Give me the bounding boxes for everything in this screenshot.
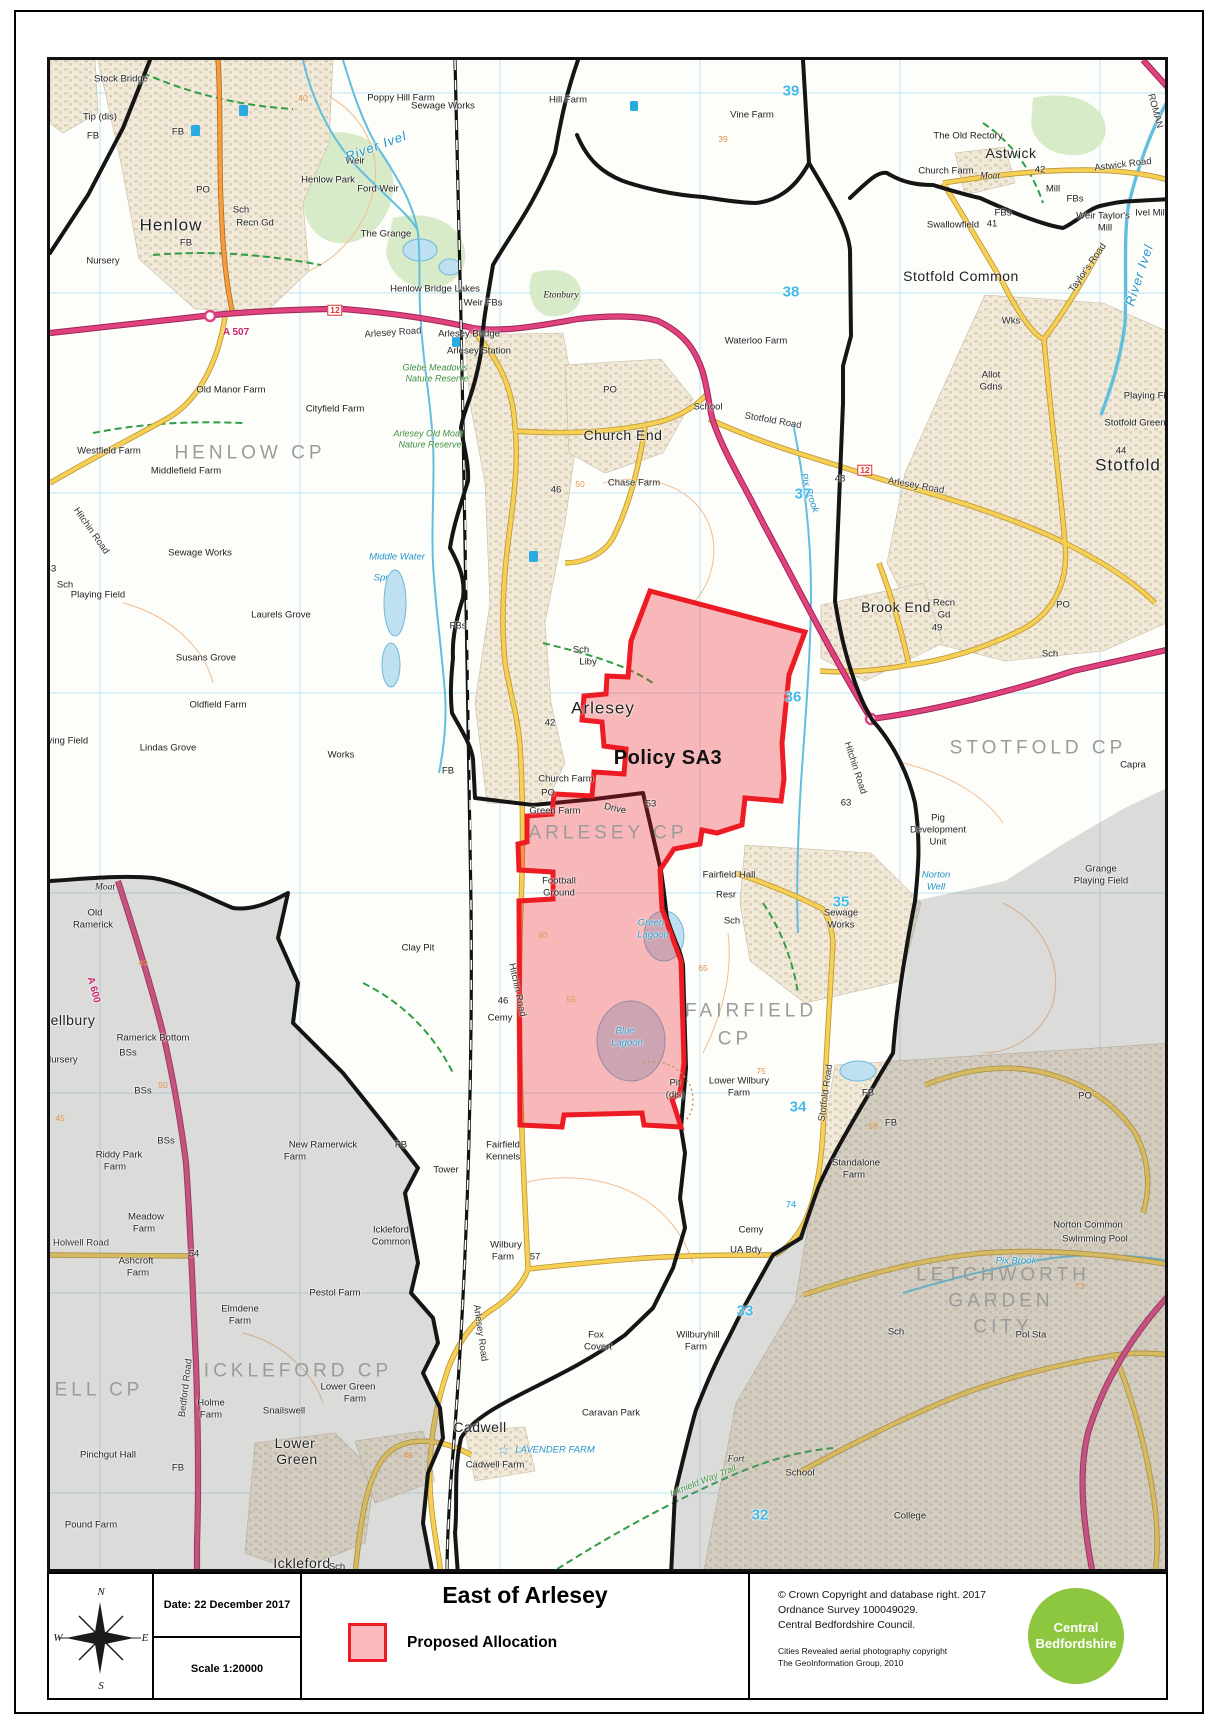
map-label: PO bbox=[1078, 1091, 1092, 1101]
map-label: Nursery bbox=[86, 256, 119, 266]
map-label: Playing Field bbox=[47, 736, 88, 746]
map-label: School bbox=[785, 1468, 814, 1478]
map-label: 42 bbox=[1035, 165, 1046, 175]
map-label: ellbury bbox=[51, 1013, 96, 1027]
copyright-text: © Crown Copyright and database right. 20… bbox=[778, 1588, 986, 1633]
map-label: Unit bbox=[930, 837, 947, 847]
map-label: 39 bbox=[783, 84, 800, 99]
date-scale-box: Date: 22 December 2017 Scale 1:20000 bbox=[152, 1572, 302, 1700]
map-label: 39 bbox=[718, 135, 727, 144]
map-label: Fort bbox=[728, 1455, 745, 1465]
map-label: 46 bbox=[498, 996, 509, 1006]
map-label: Football bbox=[542, 876, 576, 886]
map-label: Glebe Meadows bbox=[402, 364, 467, 373]
map-label: Moat bbox=[980, 172, 1000, 182]
map-label: Policy SA3 bbox=[614, 748, 722, 768]
map-label: Capra bbox=[1120, 760, 1146, 770]
map-label: Laurels Grove bbox=[251, 610, 311, 620]
map-label: 42 bbox=[545, 718, 556, 728]
map-label: Henlow Bridge Lakes bbox=[390, 284, 480, 294]
map-label: FBs bbox=[450, 621, 467, 631]
map-label: Blue bbox=[615, 1026, 634, 1036]
map-label: 50 bbox=[575, 480, 584, 489]
map-label: Well bbox=[927, 882, 945, 892]
map-label: Nature Reserve bbox=[398, 441, 461, 450]
copyright-line: Central Bedfordshire Council. bbox=[778, 1618, 986, 1633]
map-label: Cadwell bbox=[453, 1420, 506, 1434]
map-label: 49 bbox=[138, 959, 147, 968]
map-label: FB bbox=[172, 1463, 184, 1473]
map-label: Farm bbox=[133, 1224, 155, 1234]
map-label: Church Farm bbox=[538, 774, 593, 784]
map-label: 60 bbox=[538, 931, 547, 940]
map-label: ROMAN bbox=[1146, 93, 1164, 130]
map-date: Date: 22 December 2017 bbox=[154, 1574, 300, 1636]
map-label: BSs bbox=[119, 1048, 136, 1058]
map-label: FB bbox=[87, 131, 99, 141]
map-label: Cityfield Farm bbox=[306, 404, 365, 414]
map-label: Works bbox=[328, 750, 355, 760]
map-label: FB bbox=[172, 127, 184, 137]
map-label: Pig bbox=[931, 813, 945, 823]
copyright-line: Ordnance Survey 100049029. bbox=[778, 1603, 986, 1618]
map-label: 41 bbox=[987, 219, 998, 229]
map-label: Lower Green bbox=[321, 1382, 376, 1392]
map-label: Green Farm bbox=[529, 806, 580, 816]
map-label: Gd bbox=[938, 610, 951, 620]
map-label: Sewage Works bbox=[168, 548, 232, 558]
map-label: Farm bbox=[728, 1088, 750, 1098]
map-label: Resr bbox=[716, 890, 736, 900]
map-label: Stock Bridge bbox=[94, 74, 148, 84]
map-label: Lindas Grove bbox=[140, 743, 197, 753]
map-label: Meadow bbox=[128, 1212, 164, 1222]
map-label: Arlesey Bridge bbox=[438, 329, 500, 339]
map-label: Stotfold Road bbox=[817, 1064, 834, 1122]
map-label: FB bbox=[862, 1088, 874, 1098]
map-label: ICKLEFORD CP bbox=[204, 1362, 392, 1381]
map-label: Sch bbox=[724, 916, 740, 926]
map-label: Norton Common bbox=[1053, 1220, 1123, 1230]
central-bedfordshire-logo: Central Bedfordshire bbox=[1028, 1588, 1124, 1684]
map-label: River Ivel bbox=[344, 129, 409, 163]
map-label: Farm bbox=[127, 1268, 149, 1278]
map-label: 45 bbox=[55, 1114, 64, 1123]
map-label: New Ramerwick bbox=[289, 1140, 358, 1150]
map-label: Liby bbox=[579, 657, 596, 667]
compass-west-label: W bbox=[53, 1632, 62, 1644]
map-label: Recn bbox=[933, 598, 955, 608]
map-label: 12 bbox=[327, 305, 342, 316]
map-label: Green bbox=[276, 1452, 317, 1466]
aerial-line: Cities Revealed aerial photography copyr… bbox=[778, 1646, 947, 1658]
map-label: FBs bbox=[995, 208, 1012, 218]
map-label: Fox bbox=[588, 1330, 604, 1340]
map-label: Fairfield bbox=[486, 1140, 520, 1150]
copyright-line: © Crown Copyright and database right. 20… bbox=[778, 1588, 986, 1603]
map-label: Common bbox=[372, 1237, 411, 1247]
map-label: Sch bbox=[329, 1562, 345, 1572]
map-label: Swallowfield bbox=[927, 220, 979, 230]
map-label: 75 bbox=[756, 1067, 765, 1076]
map-label: Waterloo Farm bbox=[725, 336, 787, 346]
map-label: Sch bbox=[1042, 649, 1058, 659]
map-labels: Stock BridgeTip (dis)FBPoppy Hill FarmSe… bbox=[47, 57, 1168, 1572]
map-label: 12 bbox=[857, 465, 872, 476]
map-label: Ashcroft bbox=[119, 1256, 154, 1266]
map-label: Chase Farm bbox=[608, 478, 660, 488]
map-label: FB bbox=[885, 1118, 897, 1128]
map-label: A 600 bbox=[85, 976, 101, 1004]
map-label: FBs bbox=[1067, 194, 1084, 204]
map-label: Farm bbox=[200, 1410, 222, 1420]
map-label: FAIRFIELD bbox=[685, 1002, 817, 1021]
map-label: 57 bbox=[530, 1252, 541, 1262]
aerial-line: The GeoInformation Group, 2010 bbox=[778, 1658, 947, 1670]
compass-east-label: E bbox=[142, 1632, 149, 1644]
map-label: School bbox=[693, 402, 722, 412]
map-label: ARLESEY CP bbox=[529, 824, 688, 843]
proposed-allocation-swatch bbox=[348, 1623, 387, 1662]
map-label: BSs bbox=[157, 1136, 174, 1146]
map-label: Ramerick bbox=[73, 920, 113, 930]
map-label: River Ivel bbox=[1123, 242, 1155, 307]
map-label: GARDEN bbox=[948, 1292, 1053, 1311]
map-label: 48 bbox=[835, 474, 846, 484]
map-label: Swimming Pool bbox=[1062, 1234, 1127, 1244]
map-label: LETCHWORTH bbox=[916, 1266, 1090, 1285]
map-label: FB bbox=[395, 1140, 407, 1150]
map-label: Hitchin Road bbox=[507, 962, 528, 1017]
map-label: Farm bbox=[685, 1342, 707, 1352]
map-label: PO bbox=[196, 185, 210, 195]
map-label: Stotfold bbox=[1095, 457, 1161, 474]
map-label: Farm bbox=[344, 1394, 366, 1404]
map-label: Ground bbox=[543, 888, 575, 898]
map-label: Farm bbox=[104, 1162, 126, 1172]
map-label: 48 bbox=[403, 1451, 412, 1460]
map-label: Ickleford bbox=[273, 1556, 330, 1570]
map-label: Hill Farm bbox=[549, 95, 587, 105]
map-label: Holwell Road bbox=[53, 1238, 109, 1248]
map-label: Wks bbox=[1002, 316, 1020, 326]
map-label: 36 bbox=[785, 690, 802, 705]
map-label: Hitchin Road bbox=[72, 506, 111, 556]
map-label: Green bbox=[638, 918, 664, 928]
map-label: Snailswell bbox=[263, 1406, 305, 1416]
map-label: 49 bbox=[932, 623, 943, 633]
map-label: Susans Grove bbox=[176, 653, 236, 663]
map-label: Lagoon bbox=[637, 930, 669, 940]
map-label: Arlesey Road bbox=[471, 1304, 488, 1362]
map-label: Vine Farm bbox=[730, 110, 774, 120]
map-label: 35 bbox=[833, 895, 850, 910]
map-label: Arlesey Station bbox=[447, 346, 511, 356]
map-label: Pestol Farm bbox=[309, 1288, 360, 1298]
map-label: Covert bbox=[584, 1342, 612, 1352]
map-label: Allot bbox=[982, 370, 1000, 380]
map-label: Icknield Way Trail bbox=[669, 1464, 737, 1499]
logo-line: Central bbox=[1054, 1620, 1099, 1636]
map-label: Sch bbox=[57, 580, 73, 590]
map-label: College bbox=[894, 1511, 926, 1521]
map-label: Taylor's Road bbox=[1068, 242, 1109, 294]
map-canvas: Stock BridgeTip (dis)FBPoppy Hill FarmSe… bbox=[47, 57, 1168, 1572]
map-label: 44 bbox=[1116, 446, 1127, 456]
map-label: Cadwell Farm bbox=[466, 1460, 525, 1470]
map-label: The Grange bbox=[361, 229, 412, 239]
map-label: Westfield Farm bbox=[77, 446, 141, 456]
map-label: Moat bbox=[95, 883, 115, 893]
map-label: 33 bbox=[737, 1304, 754, 1319]
map-label: Works bbox=[828, 920, 855, 930]
page: Stock BridgeTip (dis)FBPoppy Hill FarmSe… bbox=[0, 0, 1222, 1728]
map-label: Lower bbox=[275, 1436, 316, 1450]
logo-line: Bedfordshire bbox=[1036, 1636, 1117, 1652]
map-label: Nursery bbox=[47, 1055, 78, 1065]
map-label: 40 bbox=[298, 94, 307, 103]
map-label: Lower Wilbury bbox=[709, 1076, 769, 1086]
map-label: Tower bbox=[433, 1165, 458, 1175]
map-label: Tip (dis) bbox=[83, 112, 117, 122]
map-label: Holme bbox=[197, 1398, 224, 1408]
map-label: A 507 bbox=[223, 328, 249, 338]
map-label: Farm bbox=[229, 1316, 251, 1326]
map-label: Cemy bbox=[488, 1013, 513, 1023]
legend-row: Proposed Allocation bbox=[348, 1623, 748, 1662]
map-label: Brook End bbox=[861, 600, 931, 614]
map-label: Spr bbox=[374, 573, 389, 583]
map-label: Hitchin Road bbox=[842, 741, 868, 796]
map-label: Sch bbox=[233, 205, 249, 215]
map-label: Development bbox=[910, 825, 966, 835]
map-label: (dis) bbox=[666, 1090, 684, 1100]
map-label: Playing Field bbox=[1124, 391, 1168, 401]
map-label: 58 bbox=[868, 1122, 877, 1131]
map-label: Pinchgut Hall bbox=[80, 1450, 136, 1460]
map-label: 55 bbox=[566, 995, 575, 1004]
map-label: Norton bbox=[922, 870, 951, 880]
map-label: 50 bbox=[158, 1081, 167, 1090]
map-label: Farm bbox=[492, 1252, 514, 1262]
map-label: 53 bbox=[646, 799, 657, 809]
map-label: Stotfold Road bbox=[744, 411, 802, 430]
map-label: Wilburyhill bbox=[676, 1330, 719, 1340]
map-label: 32 bbox=[752, 1508, 769, 1523]
map-label: 38 bbox=[783, 285, 800, 300]
map-label: The Old Rectory bbox=[933, 131, 1002, 141]
map-label: Cemy bbox=[739, 1225, 764, 1235]
map-label: Pit bbox=[669, 1078, 680, 1088]
map-label: Henlow Park bbox=[301, 175, 355, 185]
map-label: Oldfield Farm bbox=[189, 700, 246, 710]
map-label: Wilbury bbox=[490, 1240, 522, 1250]
map-label: Church End bbox=[584, 428, 663, 442]
map-label: CP bbox=[718, 1030, 752, 1049]
map-label: Arlesey Road bbox=[887, 476, 945, 495]
map-label: 54 bbox=[189, 1249, 200, 1259]
map-frame: Stock BridgeTip (dis)FBPoppy Hill FarmSe… bbox=[47, 57, 1168, 1572]
map-label: Astwick Road bbox=[1094, 157, 1152, 173]
map-label: Pol Sta bbox=[1016, 1330, 1047, 1340]
map-label: FB bbox=[180, 238, 192, 248]
map-label: Ivel Mill bbox=[1135, 208, 1167, 218]
map-label: HENLOW CP bbox=[174, 444, 325, 463]
map-label: Recn Gd bbox=[236, 218, 274, 228]
map-label: 63 bbox=[841, 798, 852, 808]
map-label: Etonbury bbox=[543, 291, 578, 301]
map-label: FB bbox=[442, 766, 454, 776]
compass-south-label: S bbox=[98, 1680, 104, 1692]
proposed-allocation-label: Proposed Allocation bbox=[407, 1634, 557, 1652]
map-label: Stotfold Green bbox=[1104, 418, 1165, 428]
compass-north-label: N bbox=[97, 1586, 104, 1598]
map-label: Ford Weir bbox=[357, 184, 399, 194]
map-label: Mill bbox=[1098, 223, 1112, 233]
map-label: Astwick bbox=[986, 146, 1037, 160]
map-label: Gdns bbox=[980, 382, 1003, 392]
map-label: Weir FBs bbox=[464, 298, 503, 308]
map-label: Church Farm bbox=[918, 166, 973, 176]
map-label: Grange bbox=[1085, 864, 1117, 874]
map-label: Weir Taylor's bbox=[1076, 211, 1130, 221]
map-label: Mill bbox=[1046, 184, 1060, 194]
map-label: PO bbox=[1056, 600, 1070, 610]
map-label: 34 bbox=[790, 1100, 807, 1115]
map-label: Middle Water bbox=[369, 552, 425, 562]
map-label: ☆ bbox=[497, 1444, 510, 1457]
map-label: Bedford Road bbox=[178, 1358, 195, 1417]
map-title: East of Arlesey bbox=[302, 1582, 748, 1609]
map-label: 37 bbox=[795, 487, 812, 502]
map-label: PO bbox=[603, 385, 617, 395]
map-label: STOTFOLD CP bbox=[950, 739, 1127, 758]
map-label: 46 bbox=[551, 485, 562, 495]
map-label: Arlesey Road bbox=[364, 326, 422, 339]
map-label: Arlesey Old Moat bbox=[393, 430, 462, 439]
map-label: Clay Pit bbox=[402, 943, 435, 953]
map-label: LAVENDER FARM bbox=[515, 1445, 595, 1455]
map-label: 43 bbox=[47, 564, 56, 574]
map-label: 74 bbox=[785, 1201, 797, 1210]
map-label: Arlesey bbox=[571, 700, 635, 717]
map-label: Lagoon bbox=[611, 1038, 643, 1048]
map-label: Old bbox=[88, 908, 103, 918]
aerial-copyright-text: Cities Revealed aerial photography copyr… bbox=[778, 1646, 947, 1670]
map-label: Ickleford bbox=[373, 1225, 409, 1235]
map-label: WELL CP bbox=[47, 1381, 143, 1400]
map-label: Farm bbox=[284, 1152, 306, 1162]
map-label: Sch bbox=[888, 1327, 904, 1337]
map-label: UA Bdy bbox=[730, 1245, 762, 1255]
map-label: Nature Reserve bbox=[405, 375, 468, 384]
map-label: Farm bbox=[843, 1170, 865, 1180]
map-label: Standalone bbox=[832, 1158, 880, 1168]
map-label: Kennels bbox=[486, 1152, 520, 1162]
map-label: Pound Farm bbox=[65, 1520, 117, 1530]
map-label: Elmdene bbox=[221, 1304, 259, 1314]
copyright-box: © Crown Copyright and database right. 20… bbox=[748, 1572, 1168, 1700]
map-label: Drive bbox=[603, 802, 627, 816]
map-label: Ramerick Bottom bbox=[117, 1033, 190, 1043]
map-label: Sewage Works bbox=[411, 101, 475, 111]
map-label: 65 bbox=[698, 964, 707, 973]
compass-box: N S E W bbox=[47, 1572, 154, 1700]
map-label: Playing Field bbox=[71, 590, 125, 600]
title-legend-box: East of Arlesey Proposed Allocation bbox=[300, 1572, 750, 1700]
map-label: Middlefield Farm bbox=[151, 466, 221, 476]
map-label: Caravan Park bbox=[582, 1408, 640, 1418]
map-label: Henlow bbox=[140, 217, 203, 234]
map-label: Stotfold Common bbox=[903, 269, 1019, 283]
map-label: Old Manor Farm bbox=[196, 385, 265, 395]
map-scale: Scale 1:20000 bbox=[154, 1636, 300, 1700]
map-label: Playing Field bbox=[1074, 876, 1128, 886]
map-label: Fairfield Hall bbox=[703, 870, 756, 880]
map-label: Riddy Park bbox=[96, 1150, 142, 1160]
map-label: BSs bbox=[134, 1086, 151, 1096]
map-label: PO bbox=[541, 788, 555, 798]
map-label: Sch bbox=[573, 645, 589, 655]
